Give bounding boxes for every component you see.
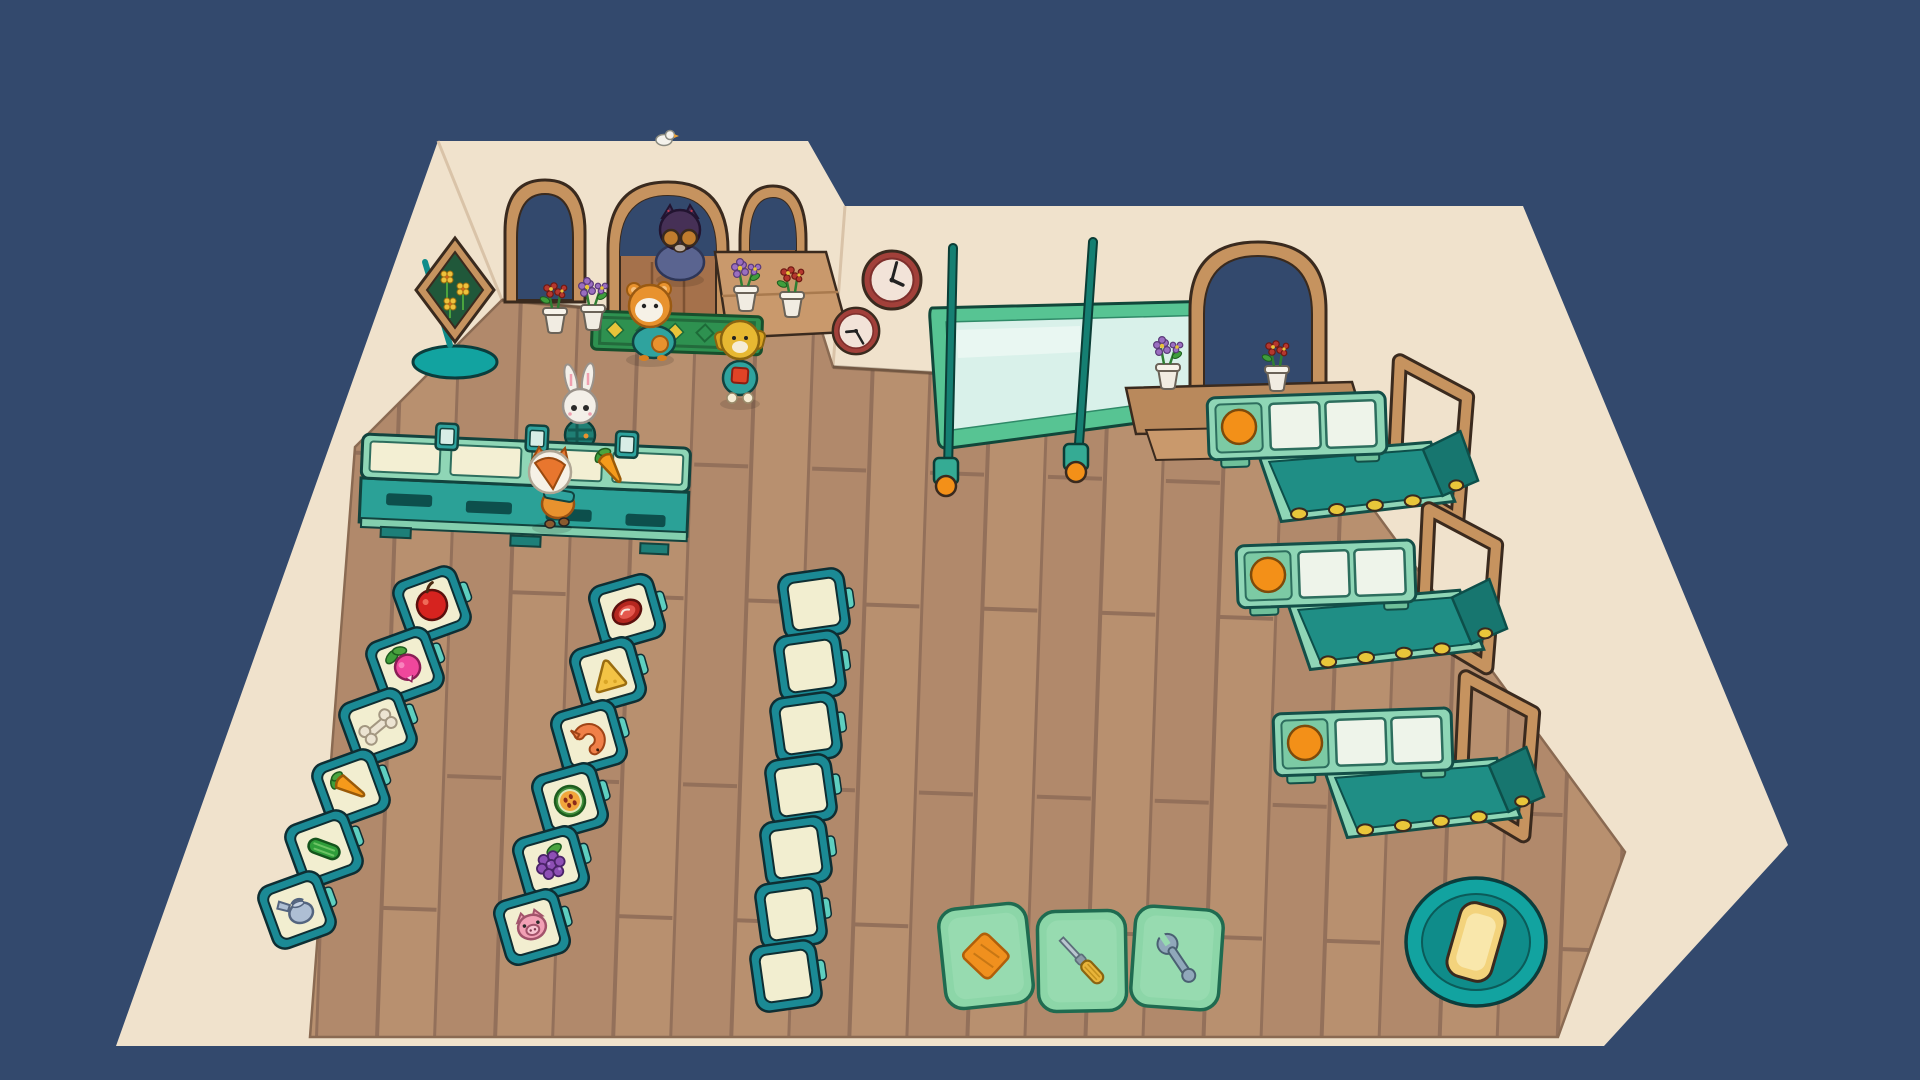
- tool-card-cloth[interactable]: [937, 902, 1035, 1011]
- wall-clock-1: [863, 251, 921, 309]
- card-reader[interactable]: [435, 423, 458, 450]
- card-reader[interactable]: [615, 431, 638, 458]
- tool-card-screwdriver[interactable]: [1037, 910, 1127, 1012]
- cleaning-robot[interactable]: [1406, 878, 1546, 1006]
- wall-clock-2: [833, 308, 879, 354]
- stand-foot: [1064, 444, 1088, 482]
- card-reader[interactable]: [525, 425, 548, 452]
- tool-cards: [937, 902, 1224, 1012]
- game-viewport: [0, 0, 1920, 1080]
- arch-window-left-opening: [517, 194, 573, 300]
- tool-card-wrench[interactable]: [1130, 905, 1225, 1011]
- stand-foot: [934, 458, 958, 496]
